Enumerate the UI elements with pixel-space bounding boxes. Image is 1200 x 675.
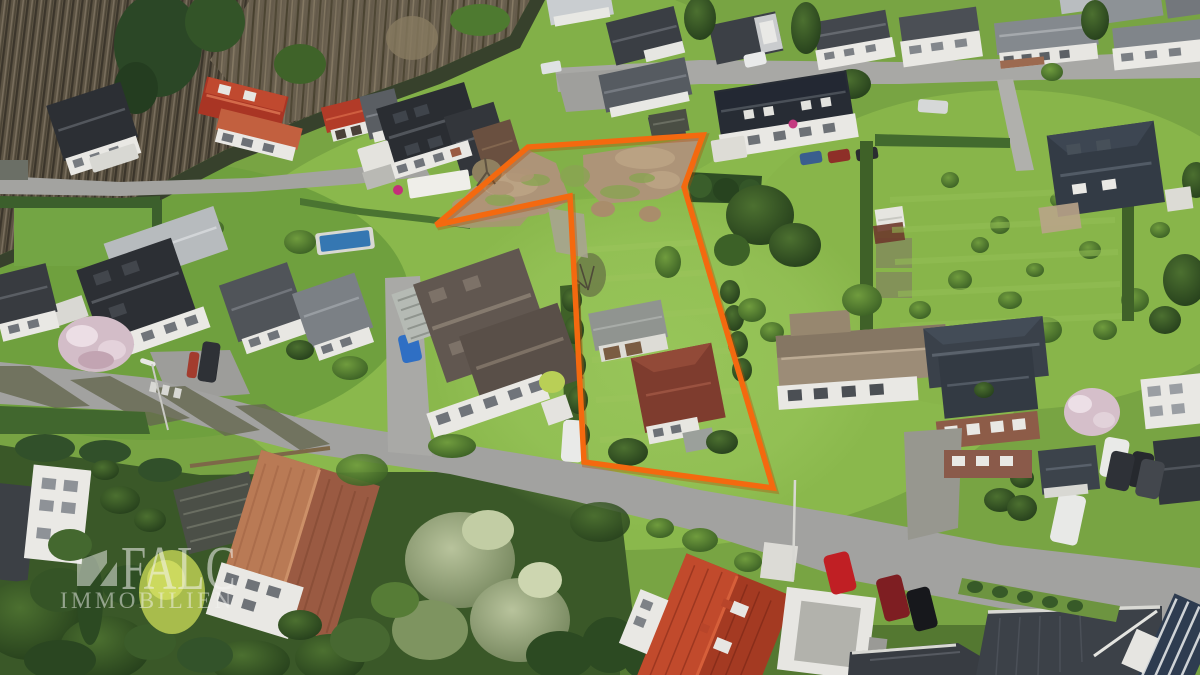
svg-text:IMMOBILIEN: IMMOBILIEN [60,588,235,613]
